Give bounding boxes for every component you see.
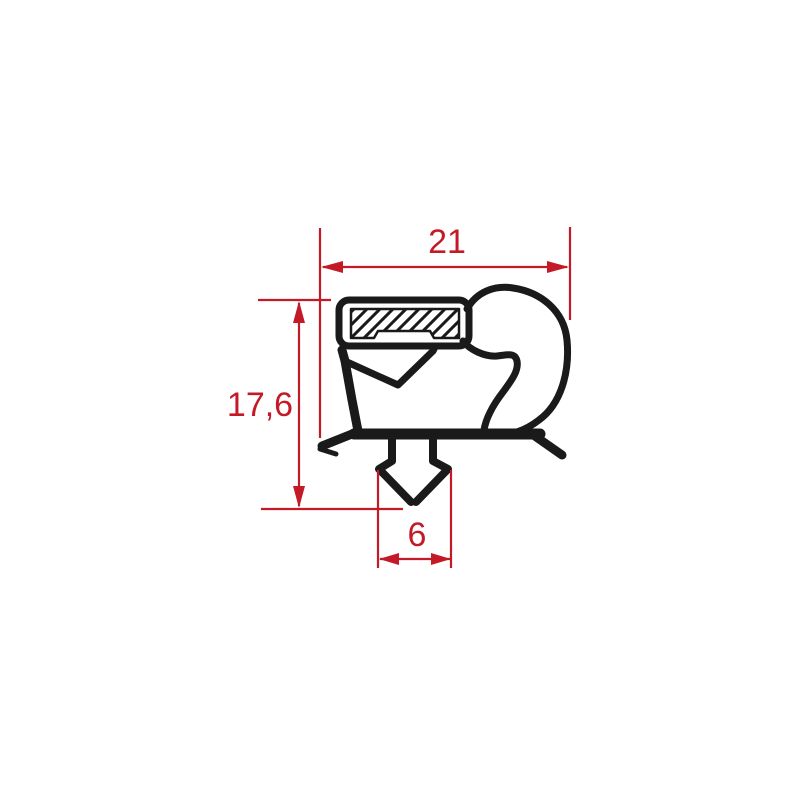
dimension-height-label: 17,6 bbox=[227, 386, 293, 424]
canvas-background bbox=[0, 0, 800, 800]
dimension-width-label: 21 bbox=[428, 223, 466, 261]
dimension-foot-width-label: 6 bbox=[408, 516, 427, 554]
technical-drawing: 21 17,6 6 bbox=[0, 0, 800, 800]
